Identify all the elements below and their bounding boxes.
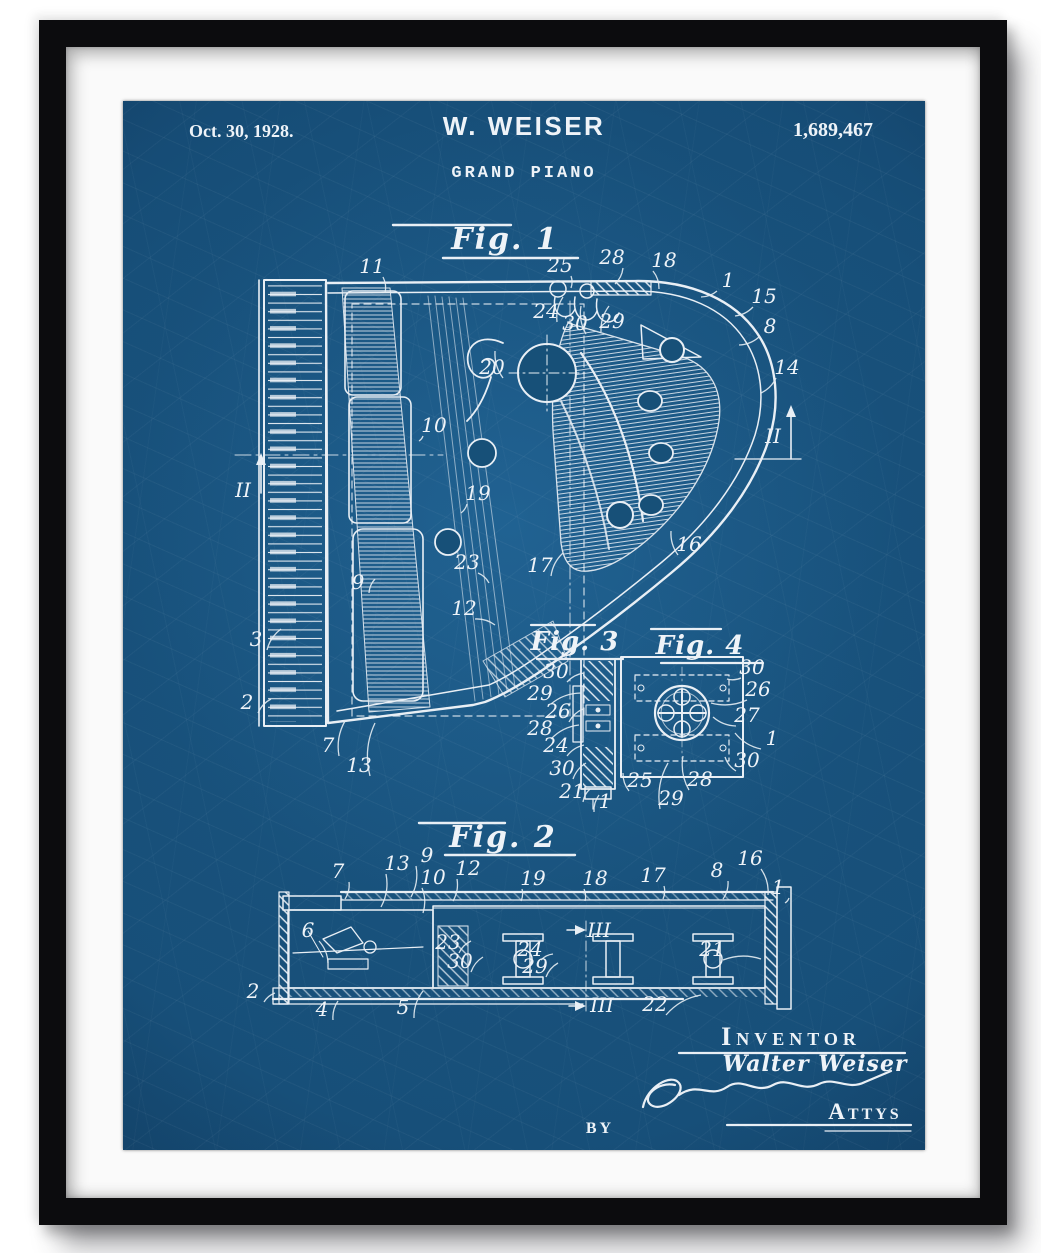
ref-label-fig2-21: 21	[698, 937, 724, 961]
ref-label-fig3-25: 25	[626, 768, 652, 792]
ref-label-fig2-17: 17	[640, 863, 666, 887]
fig4-reference-numerals: 302627130	[711, 655, 778, 772]
ref-label-fig1-17: 17	[527, 553, 553, 577]
ref-label-fig2-6: 6	[302, 918, 315, 942]
ref-label-fig1-23: 23	[453, 550, 479, 574]
picture-frame: Oct. 30, 1928. W. WEISER 1,689,467 GRAND…	[39, 20, 1007, 1225]
ref-label-fig4-27: 27	[733, 703, 760, 727]
attorneys-label: Attys	[828, 1099, 901, 1124]
ref-label-fig2-5: 5	[397, 995, 410, 1019]
ref-label-fig4-1: 1	[766, 726, 779, 750]
ref-label-fig3-24: 24	[542, 733, 568, 757]
ref-label-fig4-26: 26	[744, 677, 771, 701]
ref-label-fig1-10: 10	[421, 413, 447, 437]
ref-label-fig1-8: 8	[764, 314, 777, 338]
ref-label-fig2-12: 12	[455, 856, 480, 880]
ref-label-fig2-1: 1	[772, 875, 785, 899]
leader-line	[471, 957, 483, 972]
leader-line	[739, 337, 759, 345]
ref-label-fig3-29: 29	[657, 786, 684, 810]
ref-label-fig1-II: II	[234, 478, 252, 502]
ref-label-fig2-III: III	[586, 918, 612, 942]
ref-label-fig2-8: 8	[711, 858, 724, 882]
ref-label-fig1-15: 15	[751, 284, 776, 308]
ref-label-fig1-13: 13	[346, 753, 371, 777]
leader-line	[785, 898, 789, 903]
ref-label-fig1-2: 2	[240, 690, 254, 714]
ref-label-fig3-1: 1	[599, 789, 612, 813]
fig3-label: Fig. 3	[530, 627, 620, 657]
ref-label-fig2-4: 4	[315, 997, 329, 1021]
leader-line	[475, 619, 495, 625]
ref-label-fig1-30: 30	[562, 311, 588, 335]
fig2-label: Fig. 2	[448, 820, 556, 855]
ref-label-fig2-29: 29	[521, 954, 548, 978]
ref-label-fig3-30: 30	[543, 659, 569, 683]
leader-line	[653, 271, 659, 289]
leader-line	[461, 504, 467, 513]
ref-label-fig3-21: 21	[558, 779, 584, 803]
ref-label-fig3-28: 28	[686, 767, 712, 791]
ref-label-fig1-24: 24	[532, 299, 558, 323]
ref-label-fig1-18: 18	[651, 248, 676, 272]
ref-label-fig2-2: 2	[246, 979, 260, 1003]
ref-label-fig2-13: 13	[384, 851, 409, 875]
ref-label-fig1-16: 16	[676, 532, 702, 556]
fig1-label: Fig. 1	[450, 222, 558, 257]
ref-label-fig1-25: 25	[546, 253, 572, 277]
inventor-caption: Inventor	[721, 1022, 861, 1051]
patent-drawing: Fig. 1 Fig. 2 Fig. 3 Fig. 4 112528182430…	[123, 101, 925, 1150]
ref-label-fig2-22: 22	[641, 992, 667, 1016]
ref-label-fig2-III: III	[589, 993, 615, 1017]
fig4-label: Fig. 4	[655, 631, 745, 661]
ref-label-fig4-30: 30	[734, 748, 760, 772]
blueprint-print: Oct. 30, 1928. W. WEISER 1,689,467 GRAND…	[123, 101, 925, 1150]
ref-label-fig1-20: 20	[478, 355, 505, 379]
ref-label-fig2-19: 19	[520, 866, 546, 890]
ref-label-fig4-30: 30	[739, 655, 765, 679]
ref-label-fig1-3: 3	[250, 627, 263, 651]
ref-label-fig2-9: 9	[421, 843, 434, 867]
ref-label-fig2-10: 10	[420, 865, 446, 889]
ref-label-fig1-28: 28	[598, 245, 624, 269]
ref-label-fig1-II: II	[764, 424, 782, 448]
by-label: by	[586, 1113, 614, 1138]
leader-line	[338, 721, 345, 756]
ref-label-fig3-30: 30	[549, 756, 575, 780]
framed-patent-print: Oct. 30, 1928. W. WEISER 1,689,467 GRAND…	[0, 0, 1041, 1253]
ref-label-fig1-12: 12	[451, 596, 476, 620]
ref-label-fig1-14: 14	[774, 355, 799, 379]
ref-label-fig1-9: 9	[352, 570, 365, 594]
ref-label-fig2-7: 7	[332, 859, 345, 883]
ref-label-fig1-7: 7	[322, 733, 335, 757]
ref-label-fig1-11: 11	[359, 254, 384, 278]
ref-label-fig2-16: 16	[737, 846, 763, 870]
leader-line	[546, 963, 558, 977]
ref-label-fig2-30: 30	[447, 949, 473, 973]
ref-label-fig2-18: 18	[582, 866, 607, 890]
leader-line	[551, 553, 563, 576]
inventor-signature-name: Walter Weiser	[722, 1051, 907, 1077]
leader-line	[381, 874, 387, 907]
leader-line	[713, 717, 736, 726]
ref-label-fig1-29: 29	[598, 309, 625, 333]
ref-label-fig1-19: 19	[465, 481, 491, 505]
leader-line	[735, 733, 761, 749]
ref-label-fig1-1: 1	[722, 268, 735, 292]
leader-line	[723, 956, 761, 960]
